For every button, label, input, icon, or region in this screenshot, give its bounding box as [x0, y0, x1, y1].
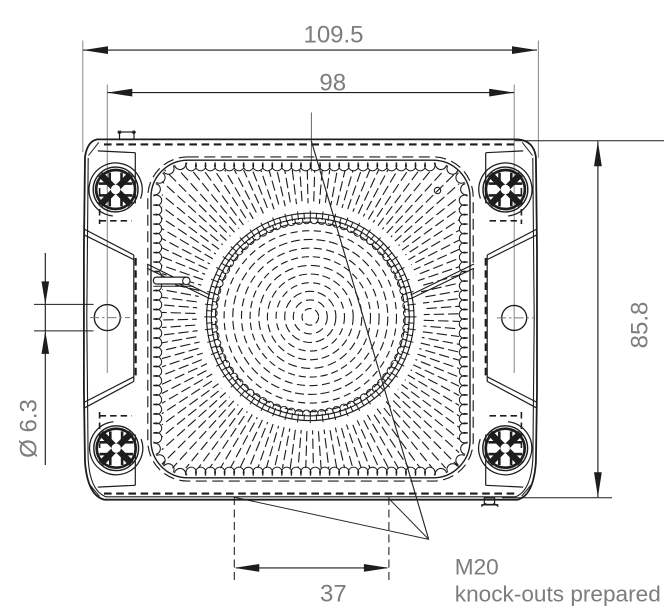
svg-text:109.5: 109.5 [303, 22, 363, 49]
svg-text:85.8: 85.8 [626, 302, 653, 349]
svg-text:Ø 6.3: Ø 6.3 [16, 399, 43, 458]
svg-text:knock-outs prepared: knock-outs prepared [455, 582, 661, 607]
svg-text:M20: M20 [455, 554, 499, 579]
svg-text:37: 37 [320, 581, 347, 608]
svg-text:98: 98 [319, 70, 346, 97]
